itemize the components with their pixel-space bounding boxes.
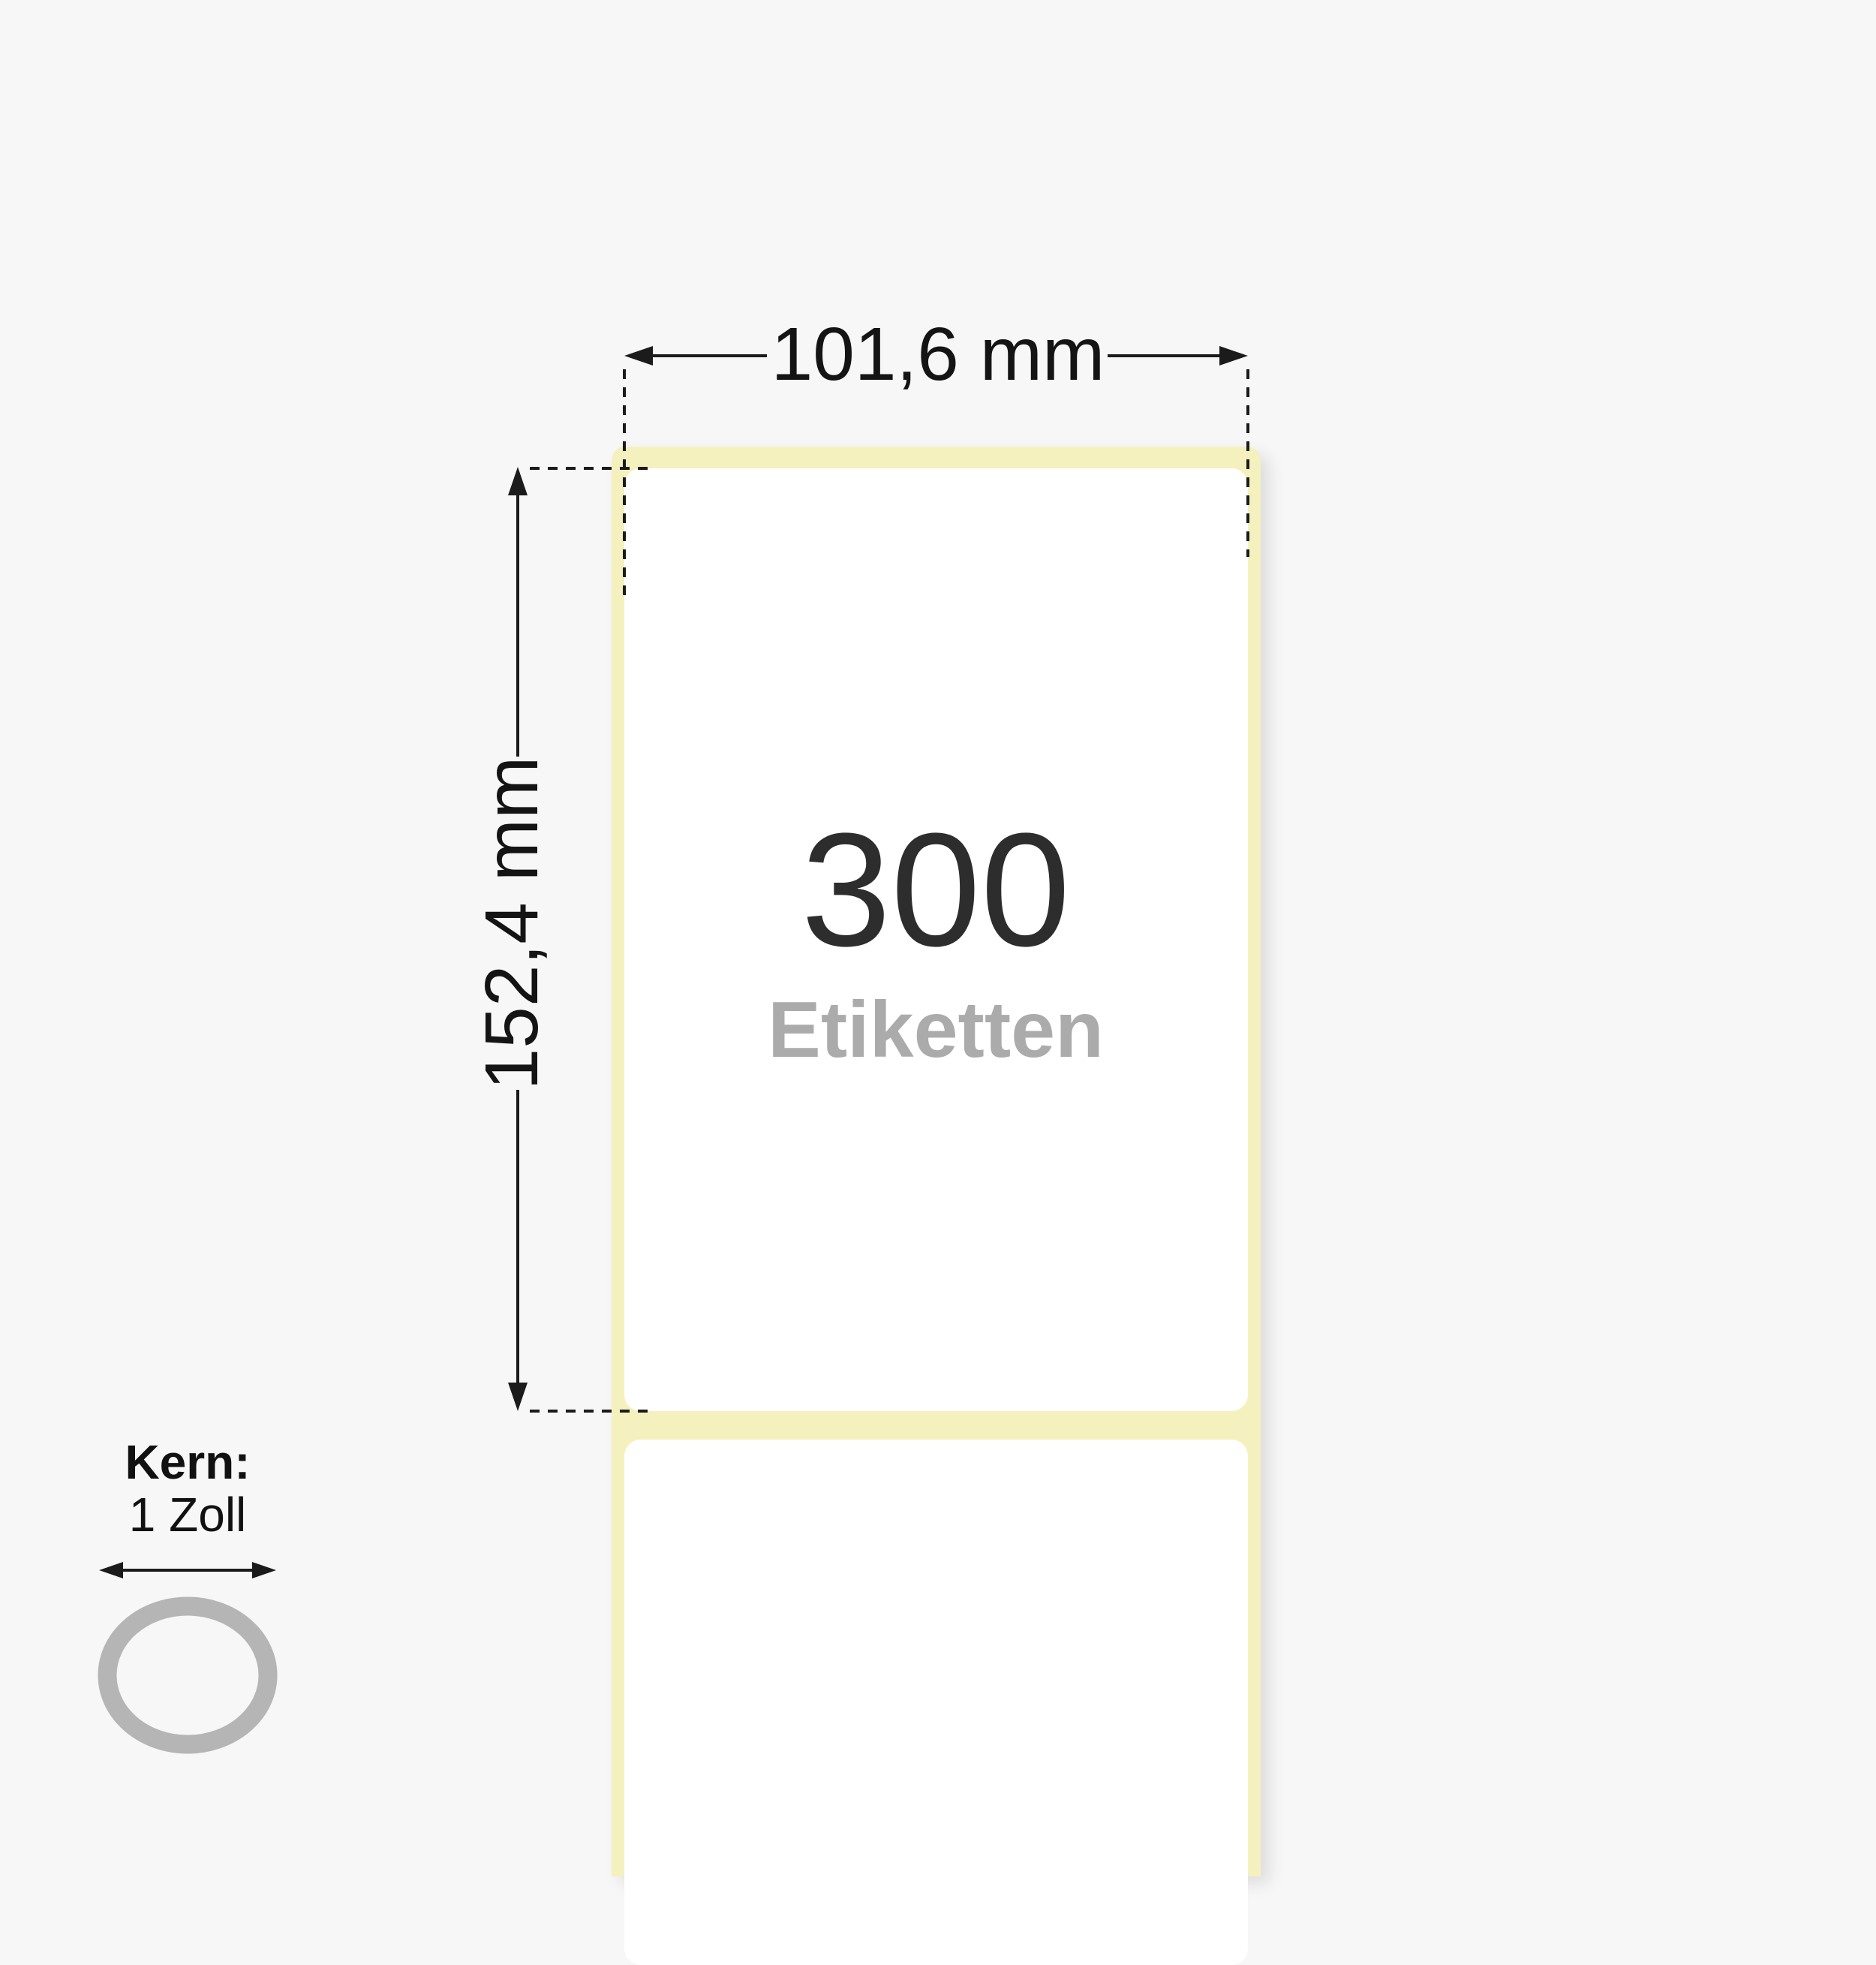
label-roll-product-diagram: 101,6 mm 152,4 mm 300 Etiketten Kern: 1 … (0, 0, 1876, 1876)
height-dimension-label: 152,4 mm (474, 757, 549, 1091)
core-size-value: 1 Zoll (129, 1491, 247, 1539)
width-dimension-label: 101,6 mm (771, 317, 1105, 392)
core-title: Kern: (125, 1438, 250, 1486)
height-bottom-arrowhead-icon (508, 1383, 528, 1411)
label-second (624, 1440, 1248, 1965)
height-top-arrowhead-icon (508, 467, 528, 495)
core-ring-icon (107, 1606, 268, 1744)
label-count-unit: Etiketten (768, 990, 1104, 1070)
core-diameter-arrow-icon (99, 1562, 276, 1578)
width-left-arrowhead-icon (624, 346, 653, 366)
width-right-arrowhead-icon (1219, 346, 1248, 366)
label-count: 300 (801, 809, 1071, 970)
